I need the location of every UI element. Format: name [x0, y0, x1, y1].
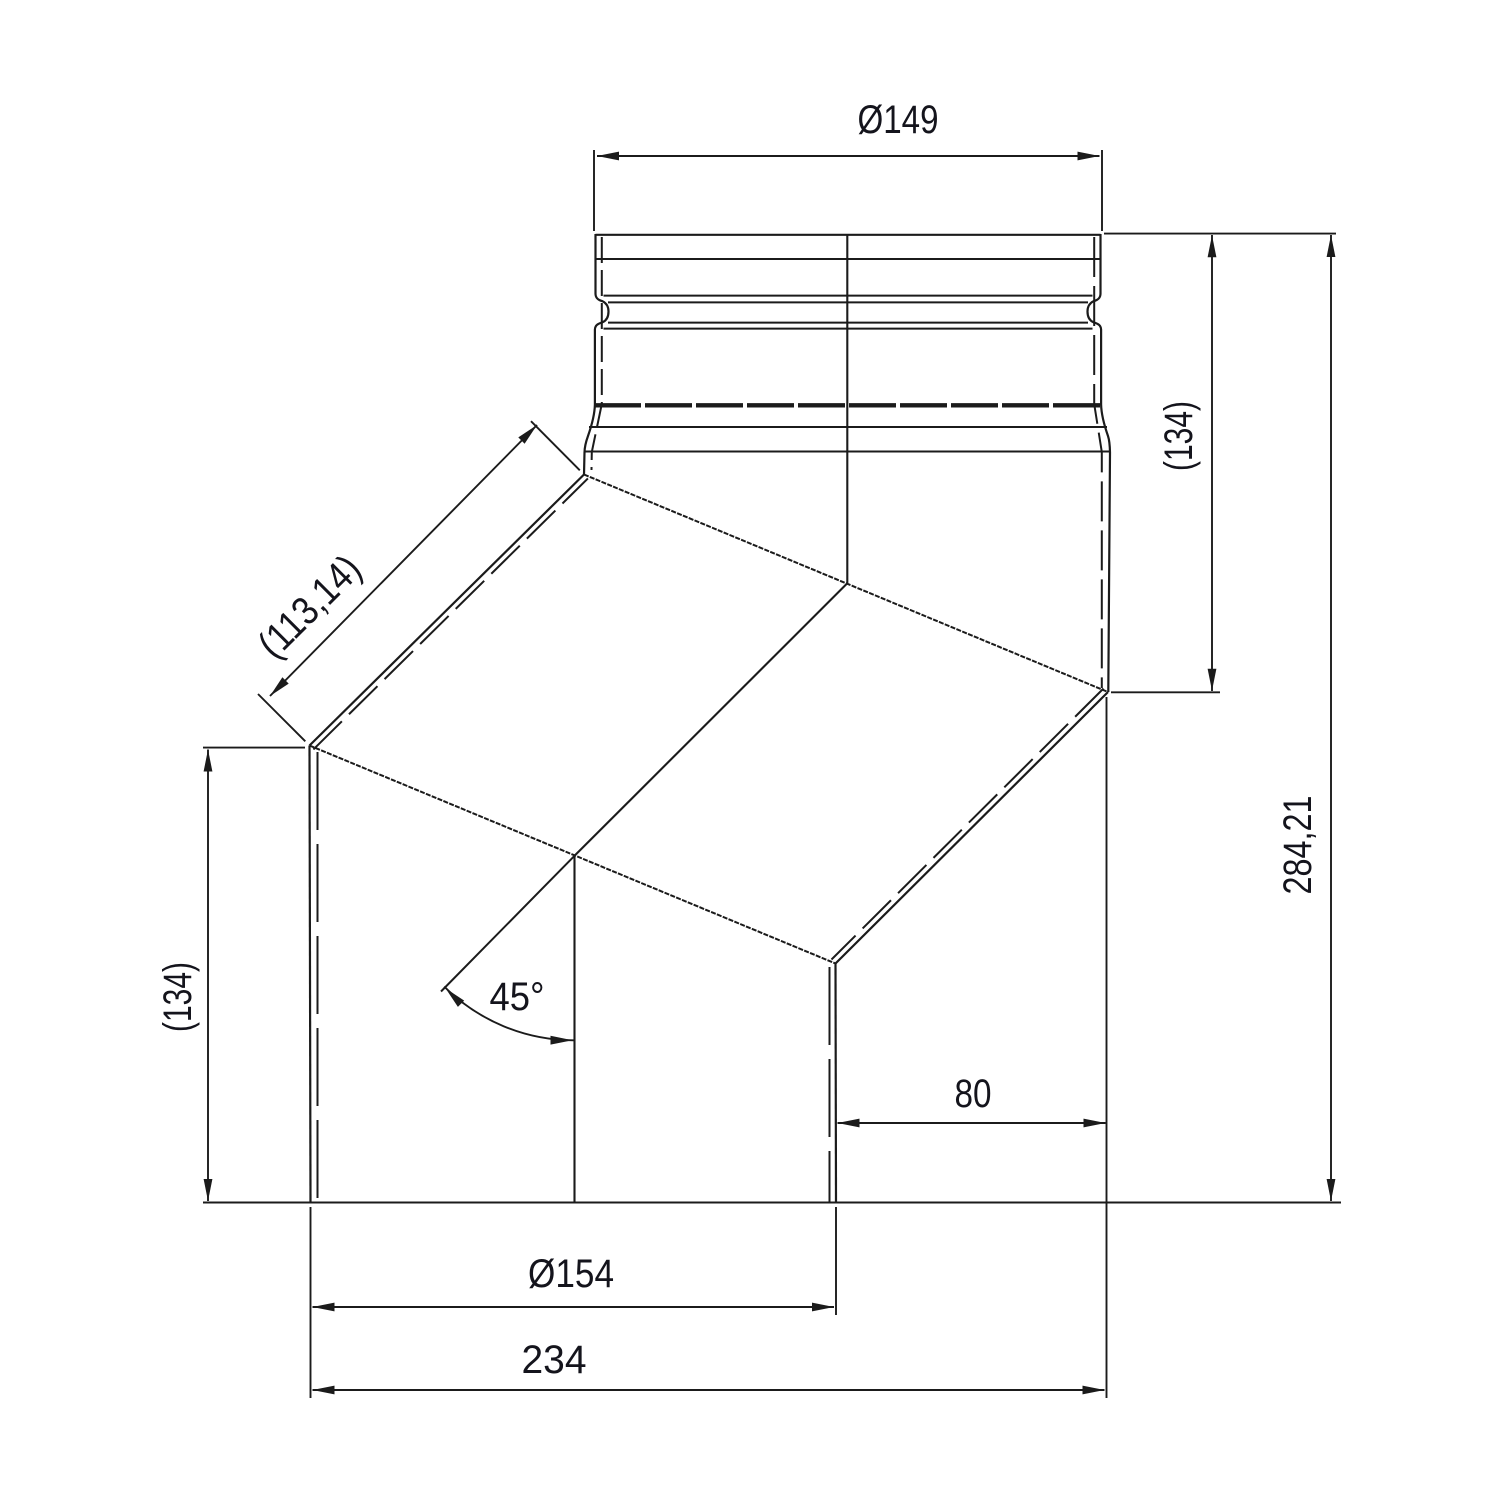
- svg-text:234: 234: [522, 1338, 587, 1382]
- svg-text:80: 80: [955, 1072, 992, 1116]
- svg-text:45°: 45°: [490, 975, 545, 1019]
- svg-text:(134): (134): [156, 962, 200, 1032]
- svg-text:284,21: 284,21: [1276, 796, 1320, 895]
- svg-text:(134): (134): [1157, 401, 1201, 471]
- svg-text:Ø154: Ø154: [528, 1252, 614, 1296]
- svg-text:Ø149: Ø149: [858, 98, 939, 142]
